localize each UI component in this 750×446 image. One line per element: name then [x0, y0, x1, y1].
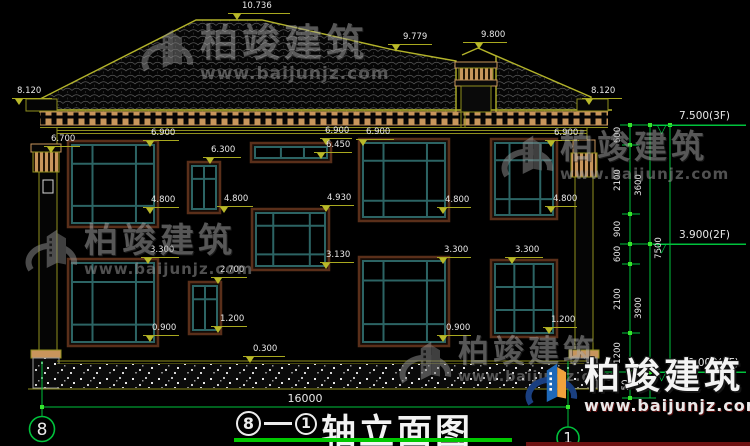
chain-dimension-text: 900: [613, 221, 623, 237]
chain-dimension-text: 2100: [613, 288, 623, 310]
elevation-linework: 8 1: [0, 0, 750, 446]
window: [359, 139, 449, 221]
title-axis-circle-8: 8: [236, 411, 261, 436]
windows: [68, 139, 557, 346]
window: [491, 260, 557, 337]
window: [68, 141, 158, 227]
chain-dimension-text: 600: [613, 127, 623, 143]
chain-dimension-text: 600: [613, 246, 623, 262]
chain-dimension-text: 50: [621, 380, 631, 391]
chain-dimension-text: 7500: [654, 237, 664, 259]
axis-bubble-8-label: 8: [37, 420, 48, 440]
logo-red-bar: [526, 442, 750, 446]
roof: [40, 20, 591, 112]
ground: [28, 361, 610, 389]
chain-dimension-text: 2100: [613, 169, 623, 191]
cad-elevation-drawing: 8 1 10.7369.7799.8008.1208.1206.7006.900…: [0, 0, 750, 446]
title-underline: [234, 438, 512, 442]
title-axis-circle-1: 1: [295, 413, 317, 435]
chain-dimension-text: 3600: [634, 174, 644, 196]
title-dash: [264, 422, 292, 425]
chain-dimension-text: 1200: [613, 342, 623, 364]
window: [68, 259, 158, 346]
chimney: [455, 62, 497, 112]
window: [252, 209, 329, 270]
window: [359, 257, 449, 346]
chain-dimension-text: 3900: [634, 297, 644, 319]
window: [188, 162, 220, 213]
